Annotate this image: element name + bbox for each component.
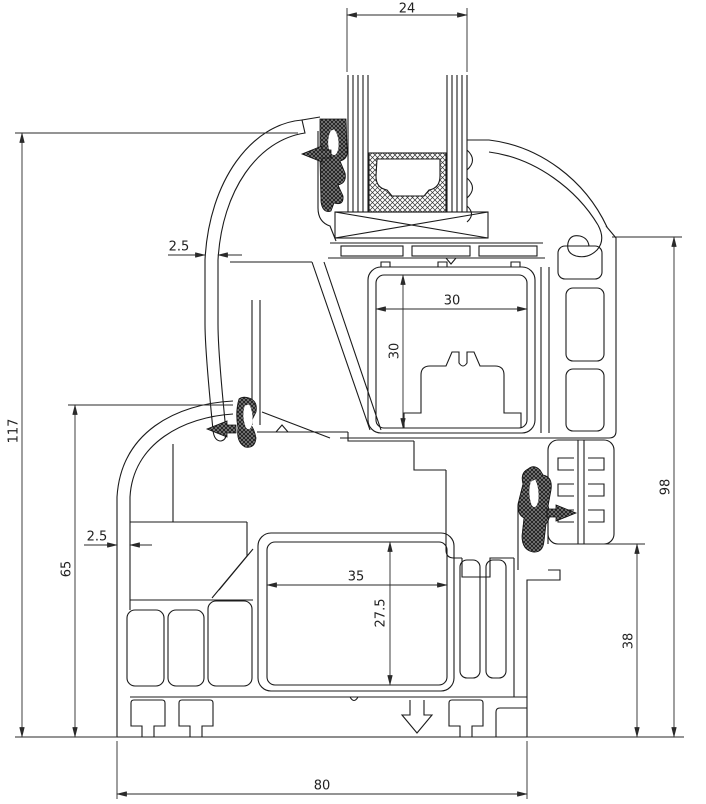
glass-lip-seals	[467, 150, 473, 222]
cross-section-svg	[0, 0, 706, 804]
seal-arrow-right	[547, 505, 576, 521]
frame-inner-wall	[130, 414, 233, 610]
dim-label-overall-height: 117	[8, 419, 21, 444]
glazing-unit	[335, 75, 488, 238]
dim-label-glazing-width: 24	[399, 3, 416, 16]
dim-label-sash-chamber-height: 30	[389, 343, 402, 360]
sash-right-chambers	[558, 246, 604, 431]
dim-label-frame-height: 65	[61, 561, 74, 578]
dim-label-sash-section-height: 98	[660, 479, 673, 496]
glass-pane-left	[348, 75, 368, 212]
seal-arrow-left-middle	[207, 421, 236, 437]
frame-right-wall	[514, 558, 560, 737]
frame-small-chambers	[127, 560, 506, 686]
dim-24-line	[347, 8, 467, 72]
glazing-packer	[335, 212, 488, 238]
dim-label-sash-chamber-width: 30	[444, 295, 461, 308]
frame-rebate	[257, 425, 548, 577]
sash-outer-wall	[205, 120, 305, 441]
gasket-bottom-right	[518, 467, 576, 552]
frame-webs	[130, 444, 253, 600]
glass-pane-right	[447, 75, 467, 212]
window-profile-drawing: 24 2.5 30 30 117 65 2.5 35 27.5 98 38 80	[0, 0, 706, 804]
dim-label-frame-chamber-height: 27.5	[375, 599, 388, 628]
dim-label-frame-chamber-width: 35	[348, 571, 365, 584]
glazing-bridge	[328, 243, 545, 264]
frame-steel-chamber	[258, 533, 454, 691]
dim-label-sash-wall: 2.5	[169, 241, 190, 254]
frame-profile	[117, 401, 614, 737]
dim-label-frame-wall: 2.5	[87, 531, 108, 544]
interlock-block	[548, 440, 614, 544]
gasket-top	[302, 119, 347, 212]
frame-outer-wall	[117, 401, 233, 737]
mounting-grooves	[117, 697, 527, 737]
dim-label-lower-right-height: 38	[623, 633, 636, 650]
dim-label-profile-depth: 80	[314, 780, 331, 793]
glazing-bead-right	[467, 140, 607, 257]
dim-65-line	[68, 405, 233, 737]
dimension-lines	[15, 8, 684, 799]
steel-reinforcement	[404, 352, 521, 428]
